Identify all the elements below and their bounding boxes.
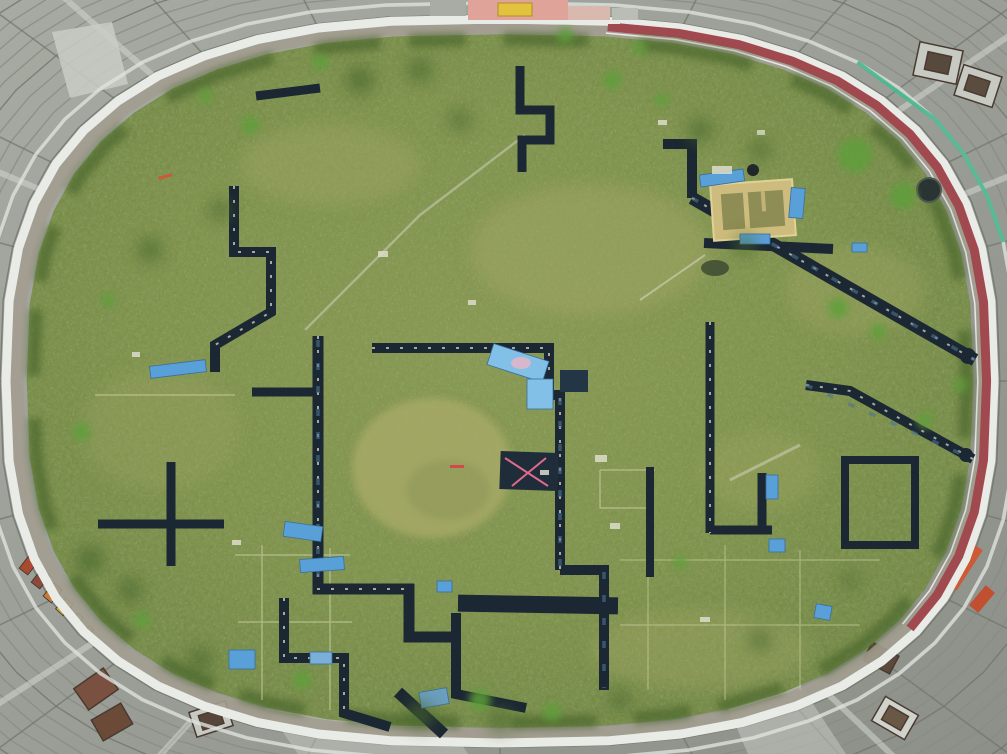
tree-canopy	[557, 27, 573, 43]
tree-canopy	[241, 116, 259, 134]
shrub	[188, 648, 212, 672]
trench-end	[960, 348, 976, 364]
debris	[610, 523, 620, 529]
debris	[232, 540, 241, 545]
blue-tarp	[766, 475, 778, 499]
mound-olive	[406, 460, 490, 520]
debris	[700, 617, 710, 622]
shrub	[138, 238, 162, 262]
tree-canopy	[838, 138, 872, 172]
shrub	[488, 708, 512, 732]
shrub	[118, 578, 142, 602]
tree-canopy	[870, 324, 886, 340]
yellow-sign	[498, 3, 532, 16]
shrub	[406, 701, 434, 729]
tree-canopy	[198, 89, 212, 103]
debris	[540, 470, 549, 475]
debris	[757, 130, 765, 135]
blue-tarp	[310, 652, 332, 664]
tree-canopy	[673, 555, 687, 569]
shrub	[688, 118, 712, 142]
building-wing	[568, 6, 610, 20]
blue-tarp	[814, 604, 832, 621]
tree-canopy	[633, 41, 647, 55]
covered-structure	[560, 370, 588, 392]
building-canopy-edge	[466, 20, 620, 24]
tree-canopy	[101, 293, 115, 307]
blue-tarp	[229, 650, 255, 669]
shrub	[610, 690, 630, 710]
tree-canopy	[828, 298, 848, 318]
dry-patch	[240, 125, 420, 205]
shrub	[735, 235, 755, 255]
tree-canopy	[917, 412, 933, 428]
shrub	[210, 200, 230, 220]
debris	[658, 120, 667, 125]
tree-canopy	[890, 183, 916, 209]
blue-tarp	[852, 243, 867, 252]
tree-canopy	[134, 612, 150, 628]
red-marking	[450, 465, 464, 468]
roof-annex	[430, 0, 466, 16]
blue-tarp	[300, 556, 345, 572]
shrub	[346, 66, 374, 94]
tree-canopy	[655, 93, 669, 107]
shrub	[750, 630, 770, 650]
equipment	[747, 164, 759, 176]
pink-debris	[511, 357, 531, 369]
blue-tarp	[527, 379, 553, 409]
tree-canopy	[953, 378, 967, 392]
shrub	[842, 572, 858, 588]
debris	[468, 300, 476, 305]
tree-canopy	[312, 54, 328, 70]
tree-canopy	[469, 689, 491, 711]
tree-canopy	[293, 671, 311, 689]
shrub	[750, 140, 770, 160]
tree-canopy	[73, 423, 91, 441]
dry-patch	[80, 370, 240, 490]
central-mound	[352, 398, 512, 538]
tree-canopy	[543, 703, 561, 721]
blue-tarp	[789, 187, 806, 218]
shrub	[76, 546, 104, 574]
debris	[378, 251, 388, 257]
aerial-photo	[0, 0, 1007, 754]
building-wing	[612, 8, 638, 20]
debris	[132, 352, 140, 357]
trench-band	[458, 595, 618, 615]
aerial-photo-stadium	[0, 0, 1007, 754]
tan-excavation-pit	[710, 179, 796, 241]
dry-patch	[470, 184, 710, 316]
debris	[595, 455, 607, 462]
tree-canopy	[603, 71, 621, 89]
blue-tarp	[437, 581, 452, 592]
storage-tank	[917, 178, 941, 202]
shrub	[408, 58, 432, 82]
blue-tarp	[769, 539, 785, 552]
water-pond	[701, 260, 729, 276]
shrub	[450, 110, 470, 130]
debris	[712, 166, 732, 174]
trench-end	[959, 448, 973, 462]
pit-interior	[721, 190, 785, 230]
entrance-opening	[924, 52, 951, 75]
